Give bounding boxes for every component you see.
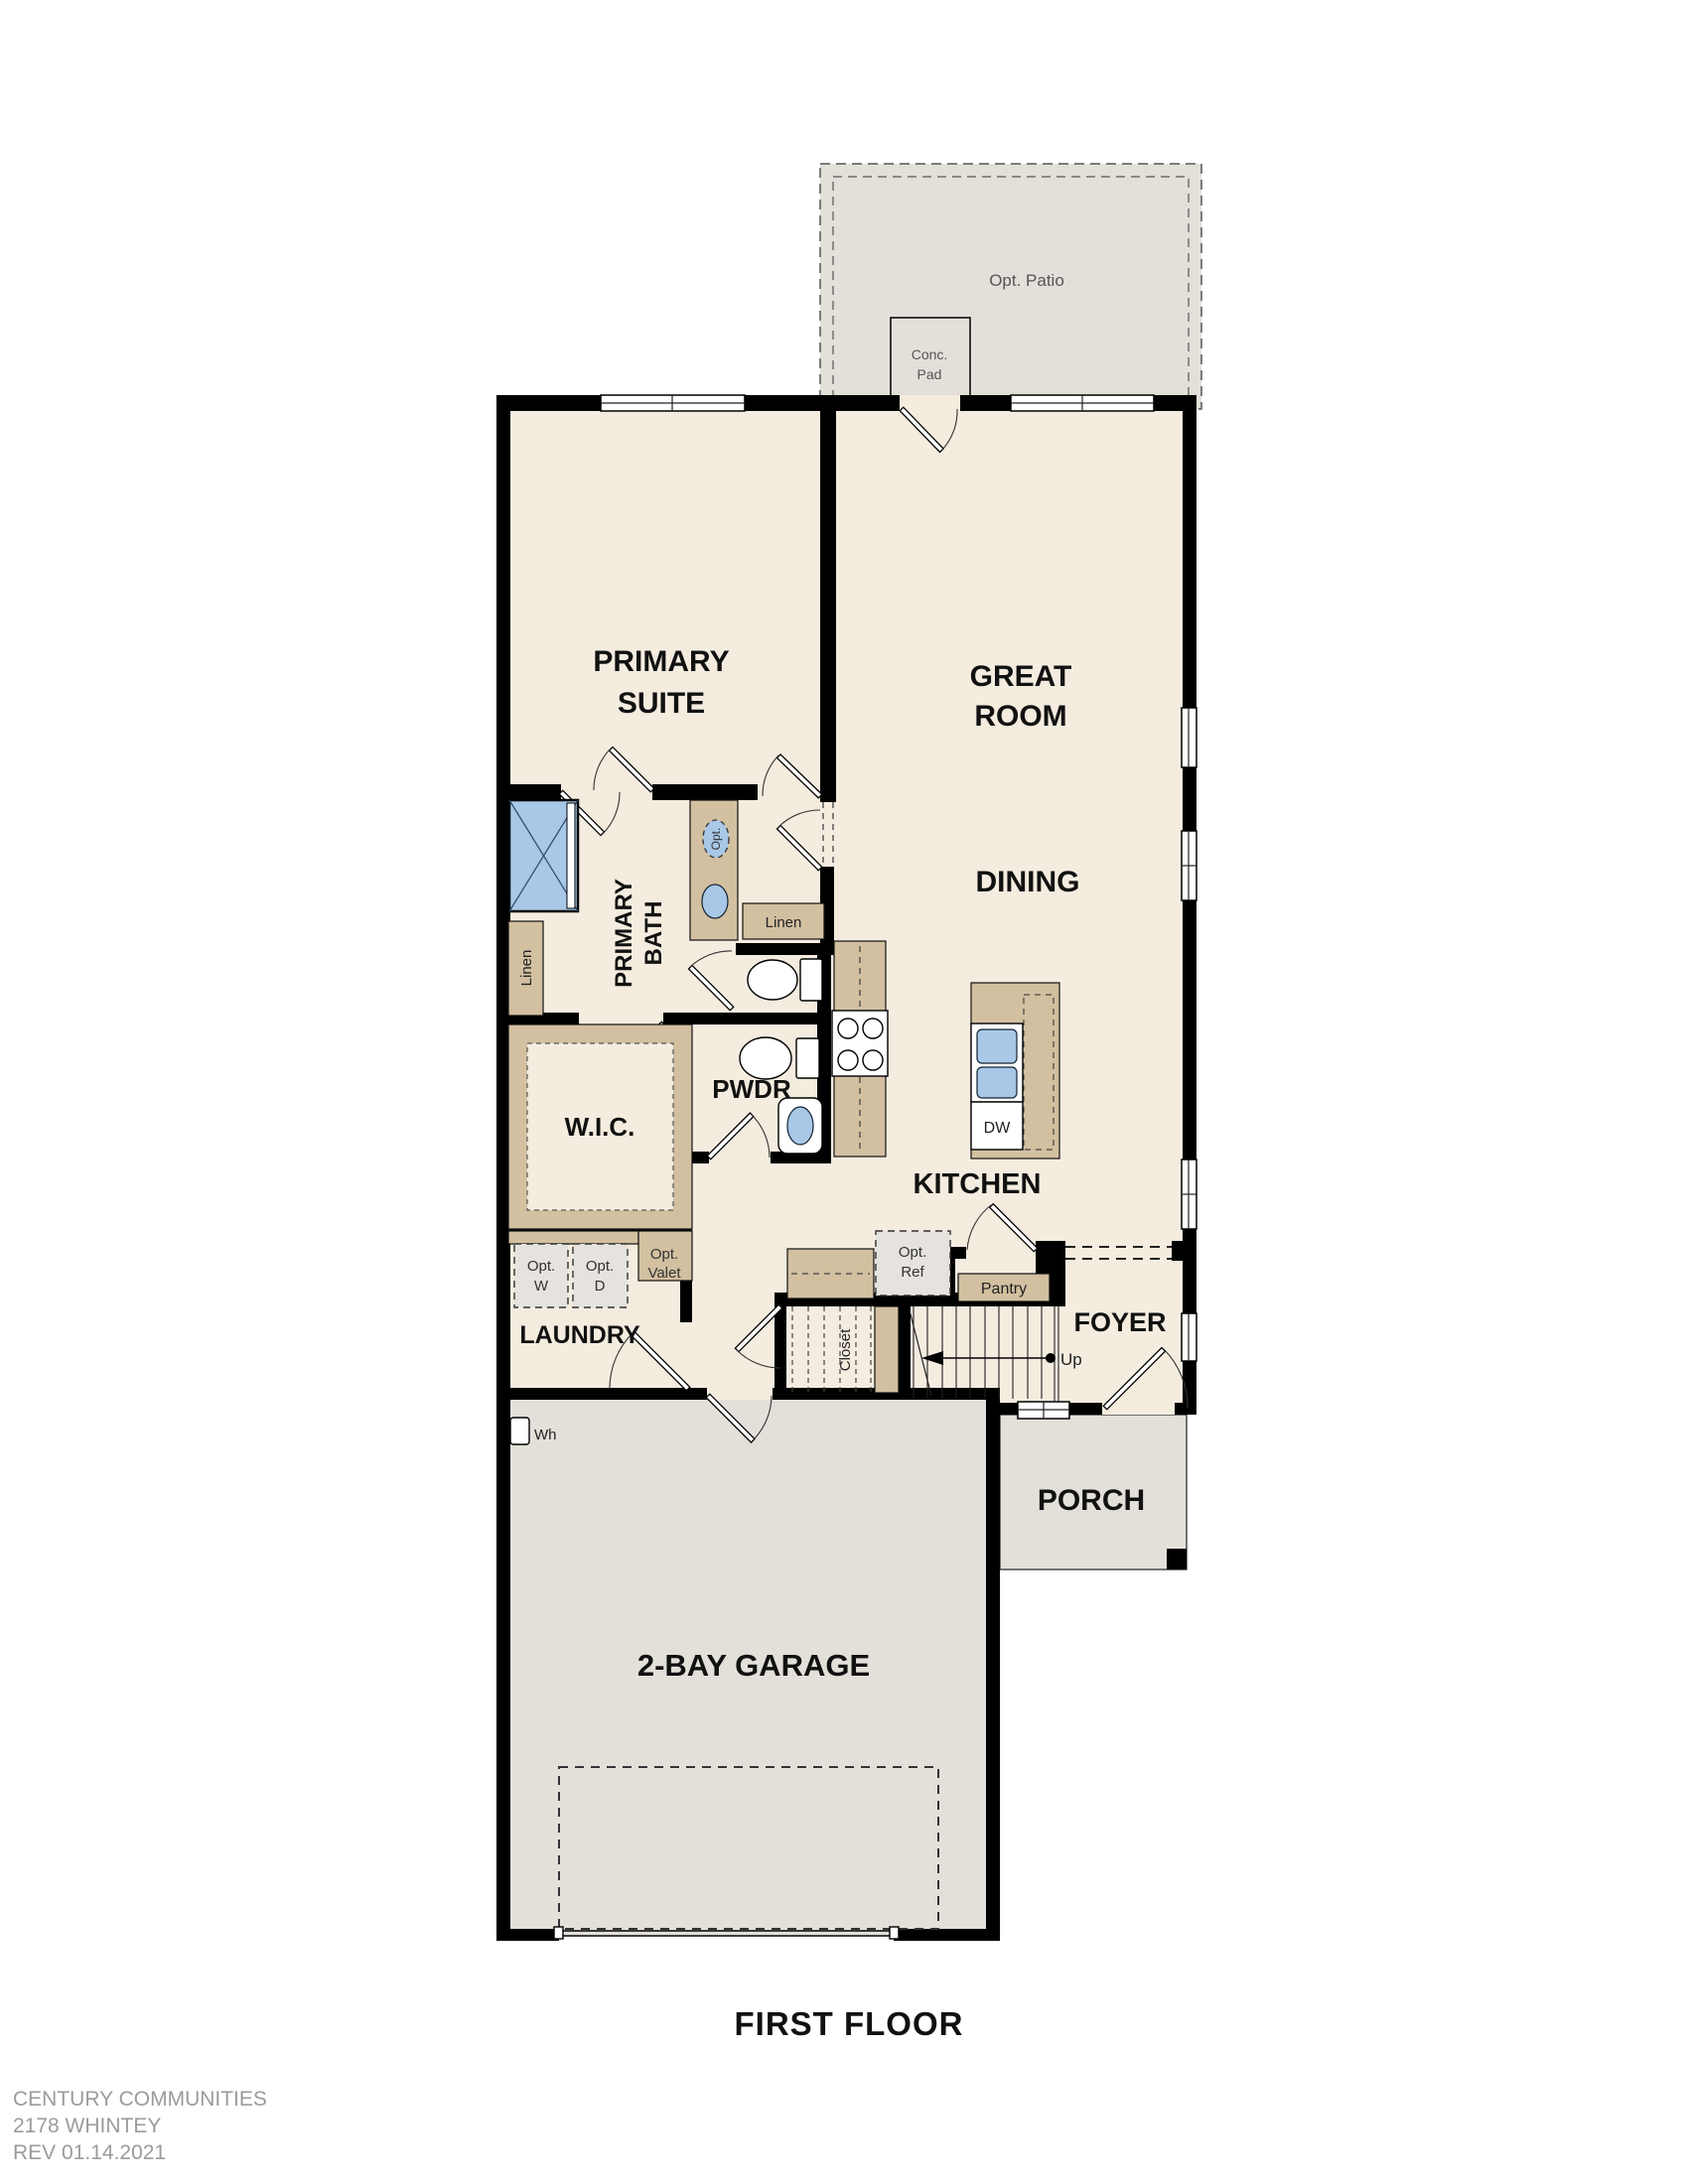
opt-sink-label: Opt. (709, 828, 723, 851)
kitchen-island: DW (971, 983, 1059, 1159)
dishwasher: DW (971, 1102, 1023, 1150)
powder-label: PWDR (712, 1074, 791, 1104)
footer-branding: CENTURY COMMUNITIES 2178 WHINTEY REV 01.… (13, 2088, 267, 2164)
dishwasher-label: DW (984, 1120, 1012, 1137)
linen-closet-bath: Linen (508, 921, 543, 1016)
opt-valet-label-2: Valet (647, 1265, 681, 1282)
garage-entry-opening (707, 1388, 773, 1400)
bath-vanity: Opt. (690, 800, 738, 940)
conc-pad-label-1: Conc. (912, 346, 948, 362)
window-dining-side (1182, 831, 1196, 900)
optional-refrigerator: Opt. Ref (876, 1231, 950, 1296)
footer-plan: 2178 WHINTEY (13, 2115, 161, 2137)
optional-patio: Opt. Patio Conc. Pad (820, 164, 1201, 409)
cooktop (832, 1011, 888, 1076)
conc-pad-label-2: Pad (917, 366, 942, 382)
window-great-room (1011, 395, 1154, 411)
opt-dryer-label-2: D (595, 1278, 606, 1295)
patio-door-opening (900, 395, 960, 411)
great-room-label-2: ROOM (974, 700, 1066, 733)
opt-patio-label: Opt. Patio (989, 271, 1064, 290)
dining-label: DINING (976, 866, 1080, 898)
linen-hall-label: Linen (766, 914, 802, 931)
pantry: Pantry (958, 1274, 1050, 1301)
window-foyer-side (1182, 1313, 1196, 1361)
up-label: Up (1060, 1350, 1082, 1369)
water-heater-label: Wh (534, 1427, 557, 1443)
footer-revision: REV 01.14.2021 (13, 2141, 166, 2164)
opt-washer-label-2: W (534, 1278, 549, 1295)
opt-dryer-label-1: Opt. (586, 1258, 614, 1275)
page-title: FIRST FLOOR (735, 2005, 964, 2042)
primary-bath-label-2: BATH (640, 901, 667, 966)
powder-sink (778, 1098, 822, 1154)
porch-pillar (1167, 1549, 1187, 1570)
pantry-label: Pantry (981, 1281, 1027, 1297)
linen-closet-hall: Linen (743, 903, 824, 939)
window-stair-front (1018, 1402, 1069, 1419)
wic-label: W.I.C. (565, 1112, 635, 1142)
closet-label: Closet (837, 1328, 854, 1371)
primary-bath-label-1: PRIMARY (611, 879, 637, 988)
primary-suite-label-1: PRIMARY (593, 645, 729, 678)
optional-dryer: Opt. D (573, 1244, 628, 1307)
foyer-label: FOYER (1073, 1307, 1166, 1337)
linen-bath-label: Linen (518, 950, 535, 987)
laundry-label: LAUNDRY (519, 1321, 640, 1349)
opt-valet-label-1: Opt. (650, 1246, 678, 1263)
kitchen-base-cabinet (787, 1249, 874, 1298)
optional-washer: Opt. W (514, 1244, 568, 1307)
great-room-label-1: GREAT (970, 660, 1072, 693)
optional-door-opening (820, 802, 836, 867)
kitchen-label: KITCHEN (914, 1168, 1042, 1200)
primary-suite-label-2: SUITE (618, 687, 705, 720)
garage-label: 2-BAY GARAGE (637, 1648, 870, 1683)
powder-toilet (740, 1037, 819, 1079)
porch-label: PORCH (1038, 1484, 1145, 1517)
window-kitchen-side (1182, 1160, 1196, 1229)
bath-toilet (748, 959, 822, 1001)
window-primary-suite (601, 395, 745, 411)
opt-ref-label-1: Opt. (899, 1244, 926, 1261)
shower (509, 800, 578, 911)
opt-washer-label-1: Opt. (527, 1258, 555, 1275)
footer-company: CENTURY COMMUNITIES (13, 2088, 267, 2111)
opt-ref-label-2: Ref (901, 1264, 924, 1281)
floor-plan-drawing: Opt. Patio Conc. Pad (0, 0, 1688, 2184)
floor-plan-page: Opt. Patio Conc. Pad (0, 0, 1688, 2184)
window-great-room-side (1182, 708, 1196, 767)
front-door-opening (1102, 1403, 1175, 1415)
